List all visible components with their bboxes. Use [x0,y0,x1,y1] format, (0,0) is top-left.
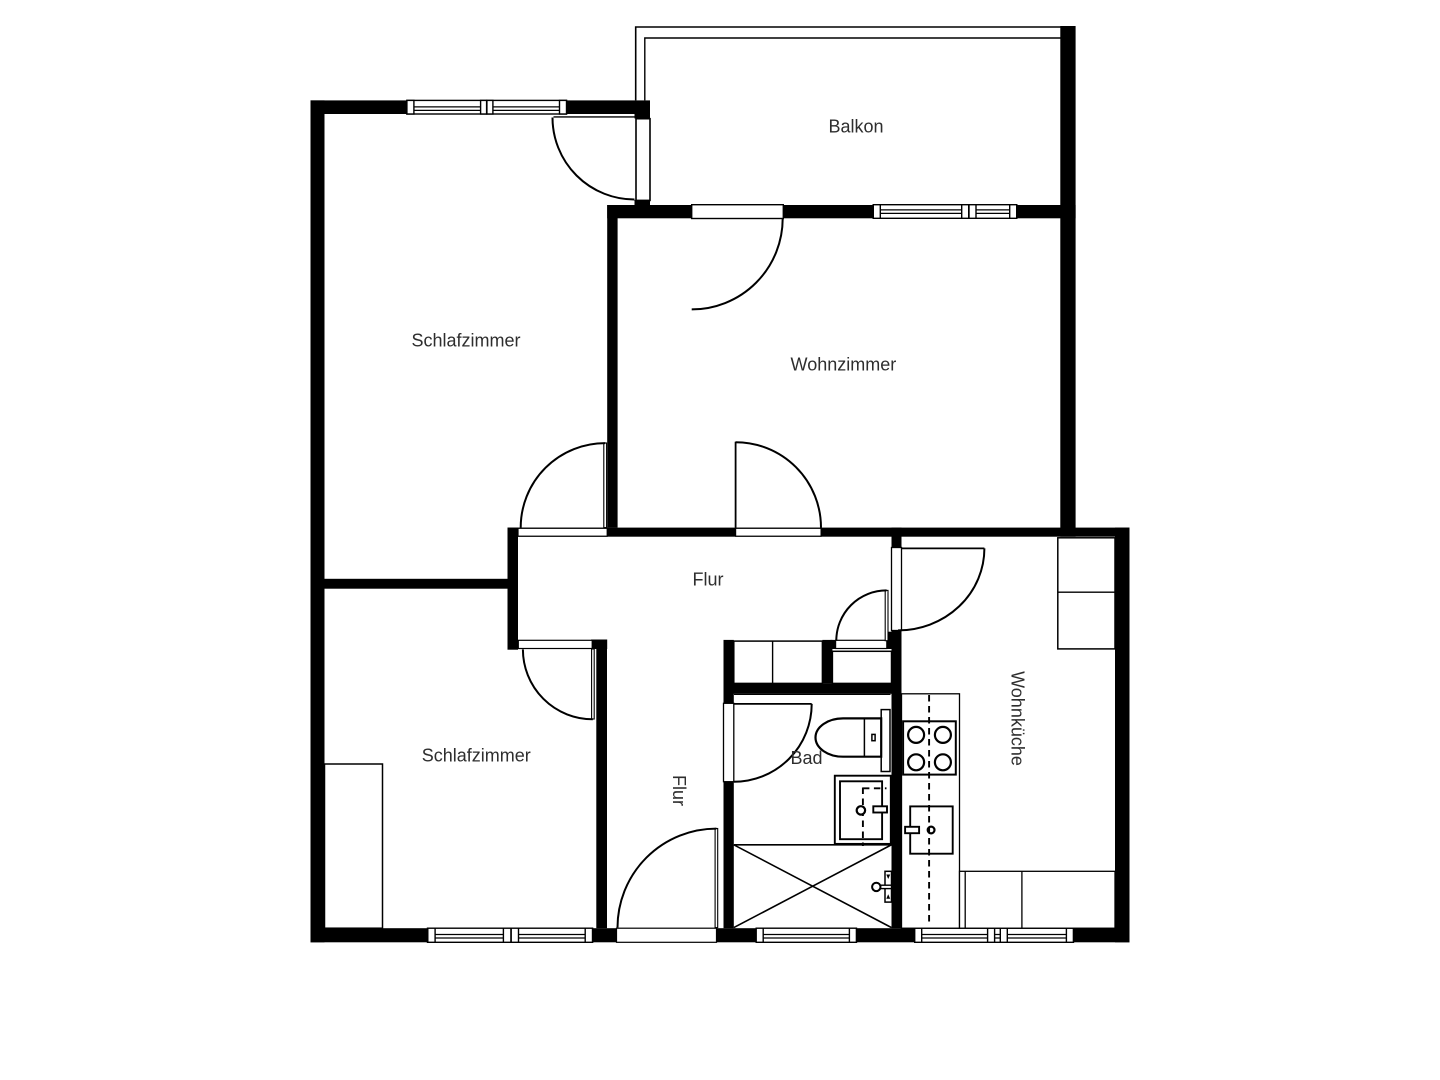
svg-text:Bad: Bad [790,748,822,768]
svg-text:Schlafzimmer: Schlafzimmer [411,331,520,351]
svg-text:Wohnküche: Wohnküche [1008,671,1028,766]
svg-text:Flur: Flur [669,775,689,806]
svg-text:Flur: Flur [693,570,724,590]
svg-text:Wohnzimmer: Wohnzimmer [791,355,897,375]
svg-text:Schlafzimmer: Schlafzimmer [422,745,531,765]
svg-text:Balkon: Balkon [828,117,883,137]
